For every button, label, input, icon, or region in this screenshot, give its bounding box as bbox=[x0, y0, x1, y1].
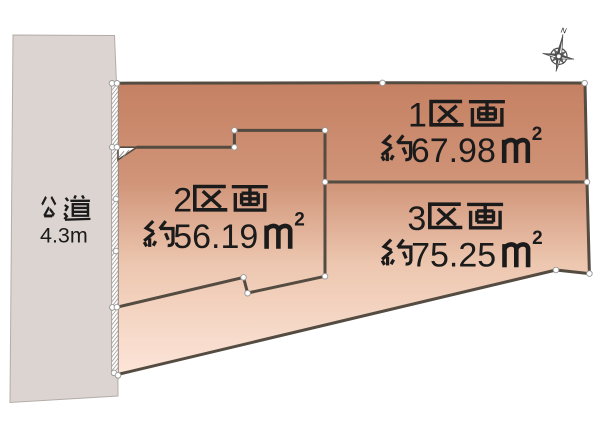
svg-text:2: 2 bbox=[532, 228, 543, 249]
svg-text:1: 1 bbox=[408, 97, 427, 135]
svg-text:2: 2 bbox=[173, 182, 192, 220]
svg-text:56.19: 56.19 bbox=[173, 218, 258, 256]
svg-text:2: 2 bbox=[532, 124, 543, 145]
svg-text:75.25: 75.25 bbox=[411, 236, 496, 274]
svg-text:4.3m: 4.3m bbox=[40, 224, 88, 248]
svg-text:2: 2 bbox=[294, 210, 305, 231]
svg-text:67.98: 67.98 bbox=[411, 132, 496, 170]
svg-text:3: 3 bbox=[407, 200, 426, 238]
